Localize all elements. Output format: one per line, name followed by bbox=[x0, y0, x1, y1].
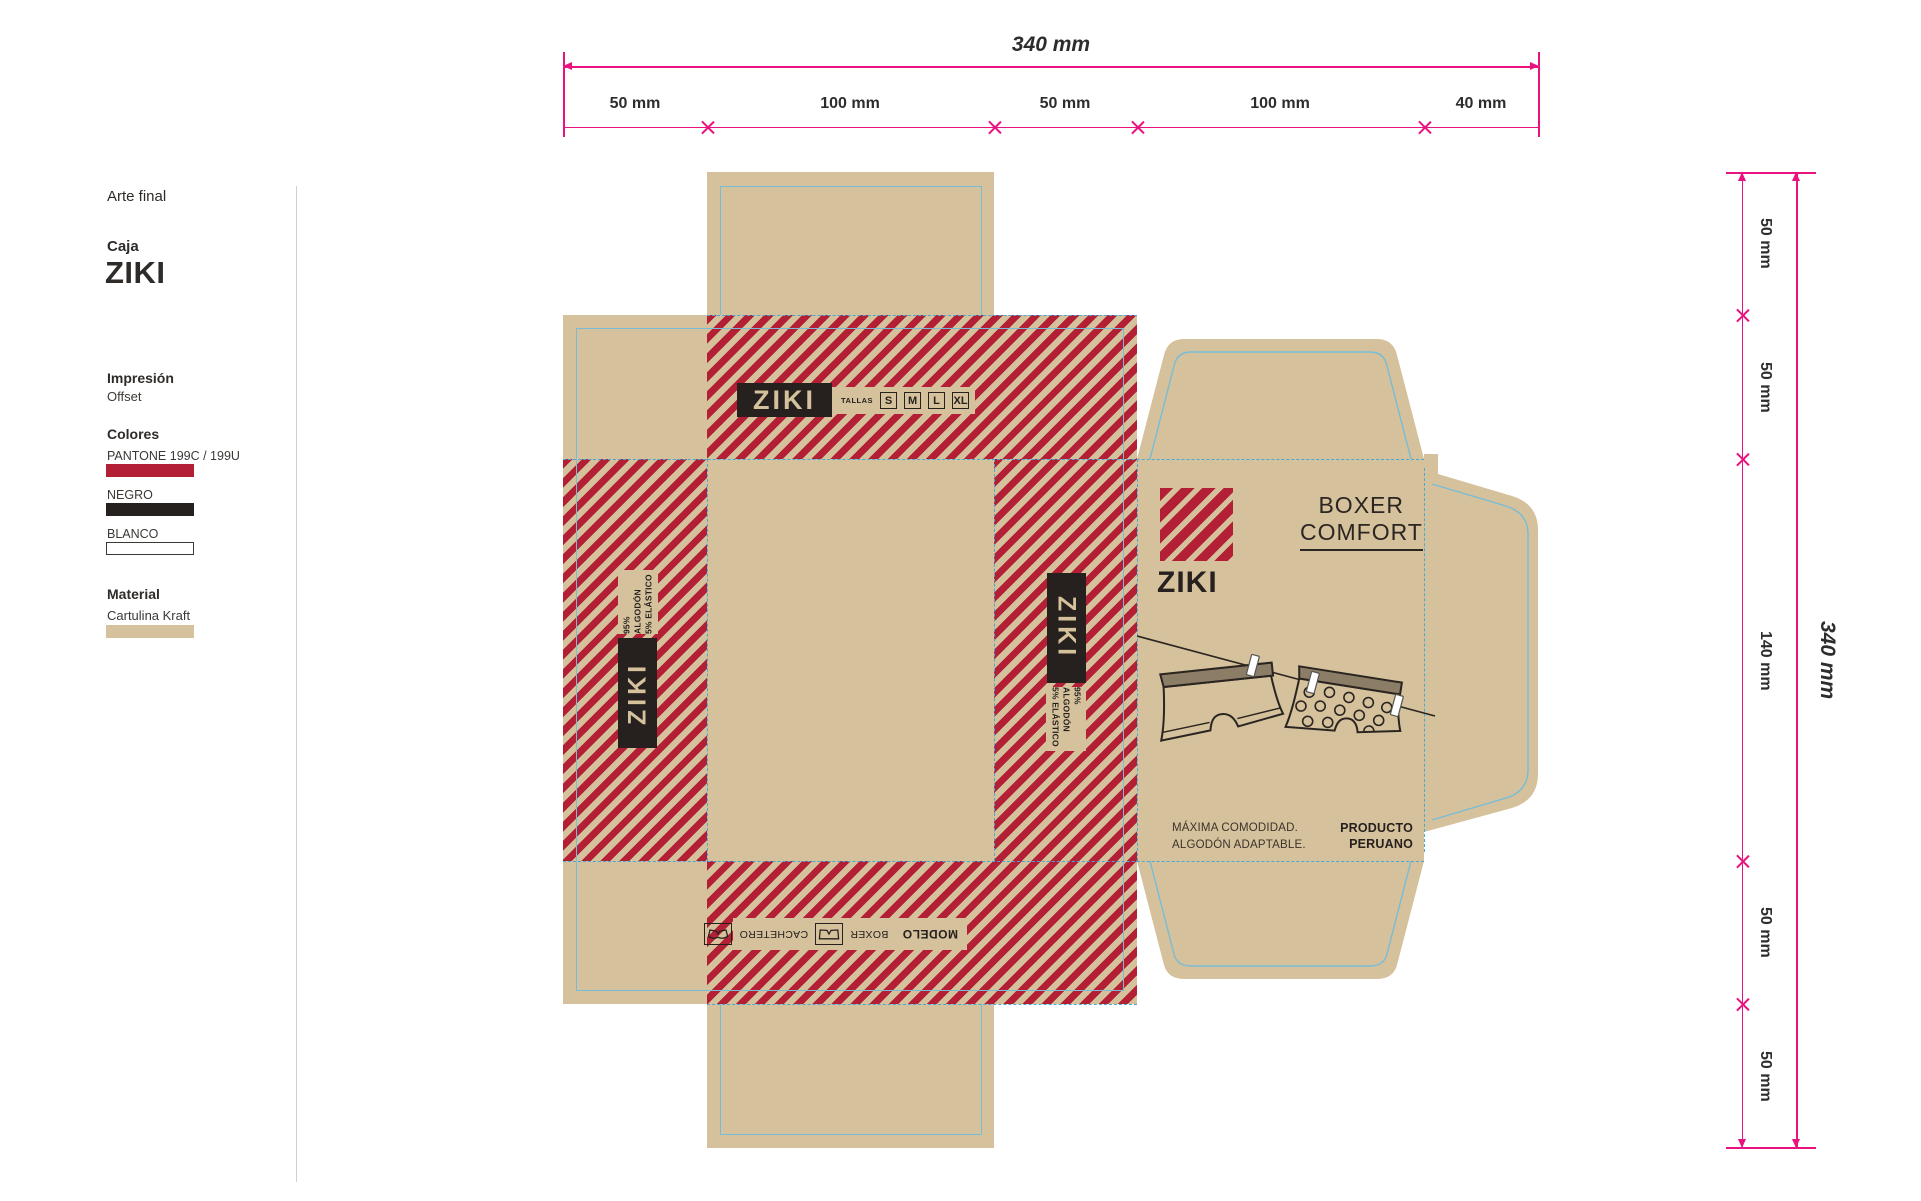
top-extension-left bbox=[563, 52, 565, 137]
size-box-s: S bbox=[880, 392, 897, 409]
dimension-tick bbox=[1129, 119, 1146, 136]
origin-line-1: PRODUCTO bbox=[1325, 820, 1413, 836]
sidebar-divider bbox=[296, 186, 297, 1182]
fold-line-lower bbox=[563, 861, 1424, 862]
sizes-strip: TALLAS S M L XL bbox=[832, 387, 975, 414]
top-band-logo-box: ZIKI bbox=[737, 383, 832, 417]
right-side-logo-box: ZIKI bbox=[1047, 573, 1086, 683]
top-dimension-line bbox=[563, 66, 1539, 68]
product-title: BOXER COMFORT bbox=[1300, 492, 1404, 551]
right-extension-bottom bbox=[1726, 1147, 1816, 1149]
top-segment-5: 40 mm bbox=[1431, 95, 1531, 113]
dimension-tick bbox=[1734, 996, 1751, 1013]
material-swatch bbox=[106, 625, 194, 638]
front-bottom-flap bbox=[1137, 861, 1424, 980]
right-segment-1: 50 mm bbox=[1756, 193, 1774, 293]
right-segment-3: 140 mm bbox=[1756, 606, 1774, 716]
dimension-tick bbox=[1734, 853, 1751, 870]
front-brand-wordmark: ZIKI bbox=[1157, 566, 1218, 600]
project-label: Caja bbox=[107, 238, 139, 255]
colors-section-label: Colores bbox=[107, 426, 159, 442]
closing-glue-flap bbox=[1424, 450, 1542, 854]
composition-line-2: 5% ELÁSTICO bbox=[644, 570, 655, 634]
color-swatch-blanco bbox=[106, 542, 194, 555]
composition-line-1: 95% ALGODÓN bbox=[1061, 687, 1083, 751]
right-dimension-total: 340 mm bbox=[1815, 560, 1839, 760]
artboard: Arte final Caja ZIKI Impresión Offset Co… bbox=[0, 0, 1921, 1201]
sizes-label: TALLAS bbox=[841, 396, 873, 405]
arrowhead bbox=[1792, 172, 1800, 181]
left-side-brand: ZIKI bbox=[624, 661, 653, 724]
page-title: Arte final bbox=[107, 188, 166, 205]
color-name-negro: NEGRO bbox=[107, 488, 153, 502]
fold-line-top bbox=[707, 315, 1137, 316]
left-side-logo-box: ZIKI bbox=[619, 638, 658, 748]
origin-line-2: PERUANO bbox=[1325, 836, 1413, 852]
right-dimension-line bbox=[1796, 172, 1798, 1148]
right-side-composition-label: 95% ALGODÓN 5% ELÁSTICO bbox=[1046, 687, 1086, 751]
print-section-label: Impresión bbox=[107, 370, 174, 386]
front-tagline: MÁXIMA COMODIDAD. ALGODÓN ADAPTABLE. bbox=[1172, 820, 1306, 854]
product-line-1: BOXER bbox=[1300, 492, 1404, 519]
top-flap-safety-line bbox=[720, 186, 982, 315]
right-side-brand: ZIKI bbox=[1052, 596, 1081, 659]
top-segment-1: 50 mm bbox=[585, 95, 685, 113]
top-segment-4: 100 mm bbox=[1230, 95, 1330, 113]
color-name-blanco: BLANCO bbox=[107, 527, 158, 541]
dimension-tick bbox=[986, 119, 1003, 136]
right-segment-5: 50 mm bbox=[1756, 1026, 1774, 1126]
dimension-tick bbox=[1734, 307, 1751, 324]
dimension-tick bbox=[699, 119, 716, 136]
left-side-composition-label: 95% ALGODÓN 5% ELÁSTICO bbox=[618, 570, 658, 634]
boxer-icon bbox=[815, 923, 843, 945]
composition-line-2: 5% ELÁSTICO bbox=[1050, 687, 1061, 751]
right-side-brand-assembly: ZIKI 95% ALGODÓN 5% ELÁSTICO bbox=[1045, 573, 1087, 751]
composition-line-1: 95% ALGODÓN bbox=[622, 570, 644, 634]
tagline-line-2: ALGODÓN ADAPTABLE. bbox=[1172, 837, 1306, 854]
product-line-2: COMFORT bbox=[1300, 519, 1423, 551]
model-label: MODELO bbox=[902, 927, 958, 941]
print-value: Offset bbox=[107, 389, 141, 404]
origin-statement: PRODUCTO PERUANO bbox=[1325, 820, 1413, 852]
size-box-m: M bbox=[904, 392, 921, 409]
bottom-flap-safety-line bbox=[720, 1004, 982, 1135]
cachetero-icon bbox=[704, 923, 732, 945]
top-segment-2: 100 mm bbox=[800, 95, 900, 113]
fold-line-col2 bbox=[994, 459, 995, 861]
ziki-logo-mark bbox=[1160, 488, 1233, 561]
color-name-pantone: PANTONE 199C / 199U bbox=[107, 449, 240, 463]
option-boxer-label: BOXER bbox=[850, 928, 888, 940]
arrowhead bbox=[1792, 1139, 1800, 1148]
fold-line-col1 bbox=[707, 459, 708, 861]
front-top-flap bbox=[1137, 338, 1424, 459]
plain-boxer-icon bbox=[1154, 662, 1284, 741]
top-segment-3: 50 mm bbox=[1015, 95, 1115, 113]
right-extension-top bbox=[1726, 172, 1816, 174]
color-swatch-negro bbox=[106, 503, 194, 516]
project-name: ZIKI bbox=[105, 255, 166, 291]
left-side-brand-assembly: ZIKI 95% ALGODÓN 5% ELÁSTICO bbox=[617, 570, 659, 748]
top-band-brand: ZIKI bbox=[753, 385, 816, 416]
top-extension-right bbox=[1538, 52, 1540, 137]
tagline-line-1: MÁXIMA COMODIDAD. bbox=[1172, 820, 1306, 837]
top-dimension-total: 340 mm bbox=[951, 33, 1151, 57]
material-section-label: Material bbox=[107, 586, 160, 602]
fold-line-bottom bbox=[707, 1004, 1137, 1005]
option-cachetero-label: CACHETERO bbox=[739, 928, 808, 940]
model-options-strip: MODELO BOXER CACHETERO bbox=[733, 918, 967, 950]
material-name: Cartulina Kraft bbox=[107, 608, 190, 623]
dimension-tick bbox=[1734, 451, 1751, 468]
size-box-xl: XL bbox=[952, 392, 969, 409]
color-swatch-pantone bbox=[106, 464, 194, 477]
right-segment-4: 50 mm bbox=[1756, 882, 1774, 982]
boxers-illustration bbox=[1137, 622, 1437, 792]
size-box-l: L bbox=[928, 392, 945, 409]
dotted-boxer-icon bbox=[1286, 666, 1408, 745]
dimension-tick bbox=[1416, 119, 1433, 136]
right-segment-2: 50 mm bbox=[1756, 337, 1774, 437]
